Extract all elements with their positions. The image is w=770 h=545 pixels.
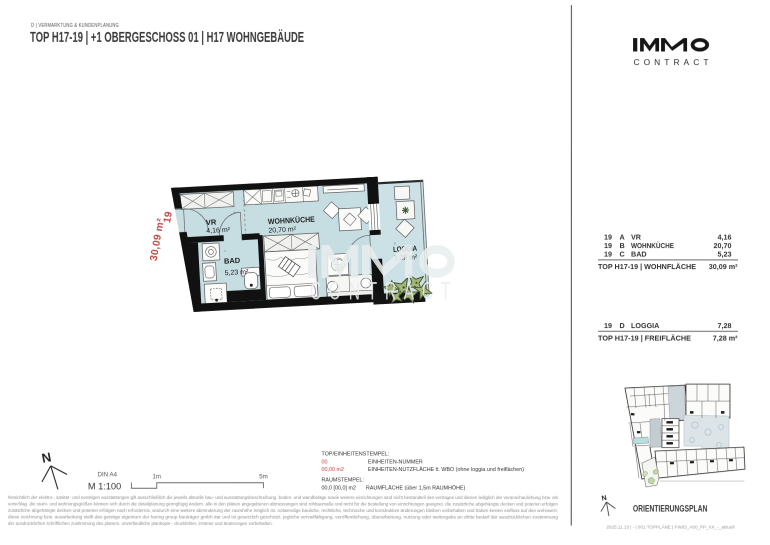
svg-text:19: 19: [604, 232, 612, 241]
svg-text:BAD: BAD: [224, 256, 241, 266]
svg-text:D | VERMARKTUNG & KUNDENPLANUN: D | VERMARKTUNG & KUNDENPLANUNG: [31, 23, 119, 29]
svg-text:19: 19: [604, 321, 612, 330]
svg-text:EINHEITEN-NUTZFLÄCHE lt. WBO (: EINHEITEN-NUTZFLÄCHE lt. WBO (ohne loggi…: [368, 466, 524, 473]
svg-text:EINHEITEN-NUMMER: EINHEITEN-NUMMER: [368, 459, 423, 465]
svg-text:7,28 m²: 7,28 m²: [713, 334, 738, 343]
svg-text:hinsichtlich der elektro-, san: hinsichtlich der elektro-, sanitär- und …: [8, 495, 559, 500]
svg-text:VR: VR: [631, 232, 642, 241]
svg-text:1m: 1m: [152, 473, 161, 480]
svg-text:diese zeichnung bzw. ausarbeit: diese zeichnung bzw. ausarbeitung stellt…: [8, 514, 559, 519]
svg-text:A: A: [620, 232, 625, 241]
svg-text:5,23 m²: 5,23 m²: [224, 269, 249, 277]
svg-text:00,0 [00,0] m2: 00,0 [00,0] m2: [321, 485, 355, 491]
svg-text:RAUMFLÄCHE (über 1,5m RAUMHÖHE: RAUMFLÄCHE (über 1,5m RAUMHÖHE): [366, 484, 466, 491]
svg-text:C: C: [620, 249, 625, 258]
svg-text:30,09 m²: 30,09 m²: [709, 262, 738, 271]
svg-text:TOP H17-19 | WOHNFLÄCHE: TOP H17-19 | WOHNFLÄCHE: [598, 262, 696, 271]
svg-text:RAUMSTEMPEL:: RAUMSTEMPEL:: [321, 477, 364, 483]
svg-text:TOP H17-19 | FREIFLÄCHE: TOP H17-19 | FREIFLÄCHE: [598, 333, 691, 342]
svg-text:4,16 m²: 4,16 m²: [206, 227, 231, 235]
svg-text:ORIENTIERUNGSPLAN: ORIENTIERUNGSPLAN: [633, 504, 708, 514]
svg-text:D: D: [619, 321, 624, 330]
svg-text:TOP/EINHEITENSTEMPEL:: TOP/EINHEITENSTEMPEL:: [321, 451, 389, 457]
svg-text:19: 19: [604, 249, 612, 258]
svg-text:00,00 m2: 00,00 m2: [321, 467, 343, 473]
svg-text:5m: 5m: [259, 473, 268, 480]
svg-text:CONTRACT: CONTRACT: [634, 57, 713, 67]
svg-text:LOGGIA: LOGGIA: [631, 321, 659, 330]
svg-text:2025.11.13 | - | 001 TOPPLÄNE: 2025.11.13 | - | 001 TOPPLÄNE | FW03_A00…: [606, 524, 734, 530]
svg-text:7,28: 7,28: [717, 321, 731, 330]
svg-text:vorschlag. die raum- und wohnu: vorschlag. die raum- und wohnungsgrößen …: [8, 501, 559, 506]
svg-text:00: 00: [321, 459, 327, 465]
svg-text:5,23: 5,23: [718, 250, 732, 259]
svg-text:der ausdrücklichen schriftlich: der ausdrücklichen schriftlichen zustimm…: [8, 521, 273, 526]
svg-text:BAD: BAD: [631, 249, 647, 258]
svg-text:CONTRACT: CONTRACT: [310, 278, 458, 306]
svg-text:4,16: 4,16: [718, 232, 732, 241]
svg-text:DIN A4: DIN A4: [97, 471, 117, 478]
svg-text:TOP H17-19 | +1 OBERGESCHOSS 0: TOP H17-19 | +1 OBERGESCHOSS 01 | H17 WO…: [30, 29, 304, 46]
svg-text:M 1:100: M 1:100: [88, 481, 121, 491]
svg-text:VR: VR: [206, 217, 217, 227]
svg-text:zusätzliche abgehängte decken: zusätzliche abgehängte decken und poteri…: [8, 508, 558, 513]
